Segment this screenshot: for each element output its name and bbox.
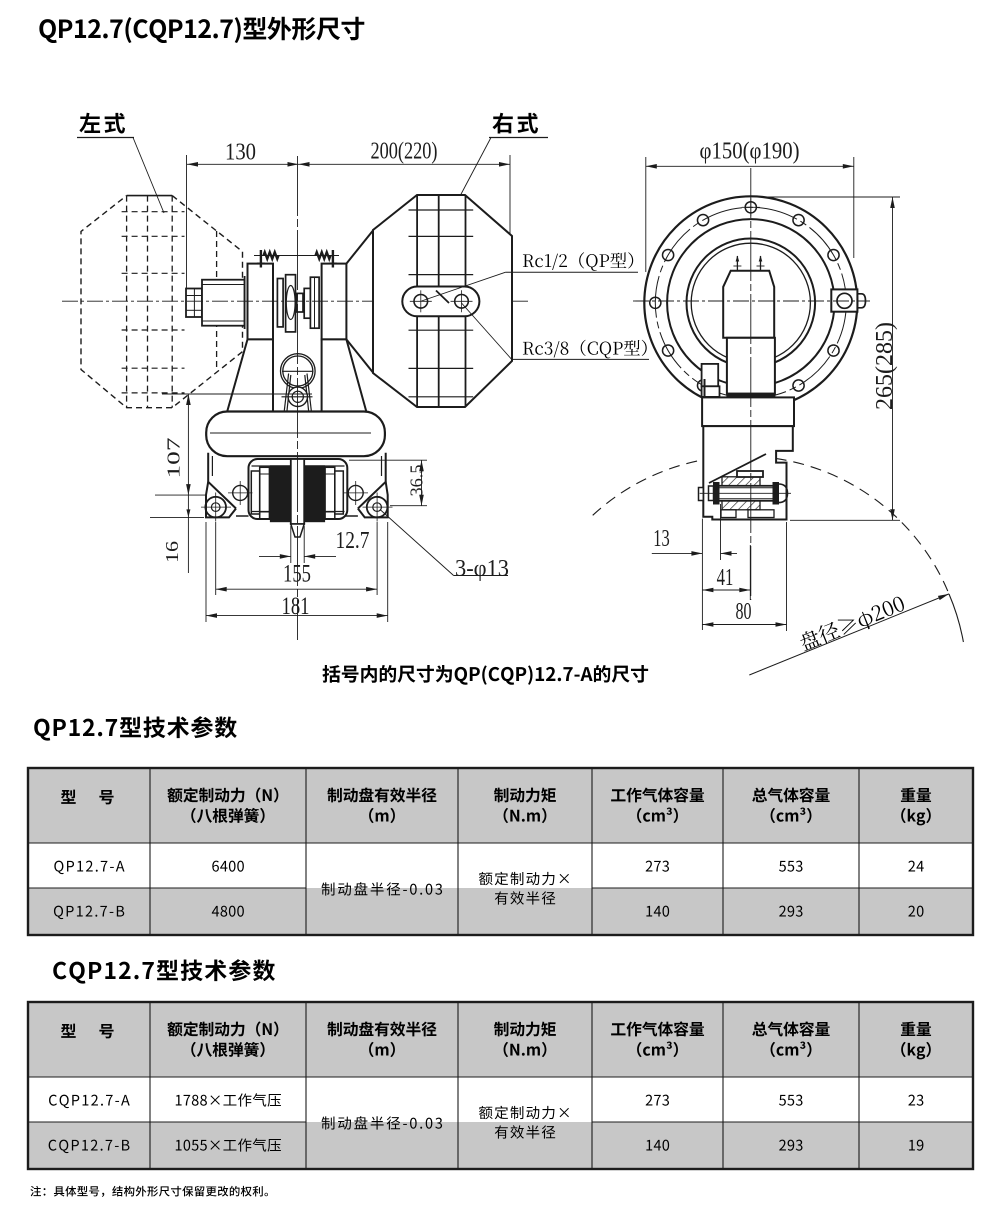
svg-text:41: 41 [717,565,734,591]
svg-text:13: 13 [653,526,670,552]
svg-text:80: 80 [736,599,752,625]
svg-text:12.7: 12.7 [336,528,370,554]
svg-text:3-φ13: 3-φ13 [455,556,509,582]
svg-text:155: 155 [283,561,311,588]
svg-text:130: 130 [225,140,256,166]
svg-text:200(220): 200(220) [371,139,438,165]
svg-text:16: 16 [162,541,182,563]
svg-text:265(285): 265(285) [872,322,898,410]
svg-text:107: 107 [164,438,184,479]
svg-text:φ150(φ190): φ150(φ190) [700,139,800,165]
svg-text:36.5: 36.5 [407,465,427,497]
svg-text:181: 181 [282,593,310,620]
